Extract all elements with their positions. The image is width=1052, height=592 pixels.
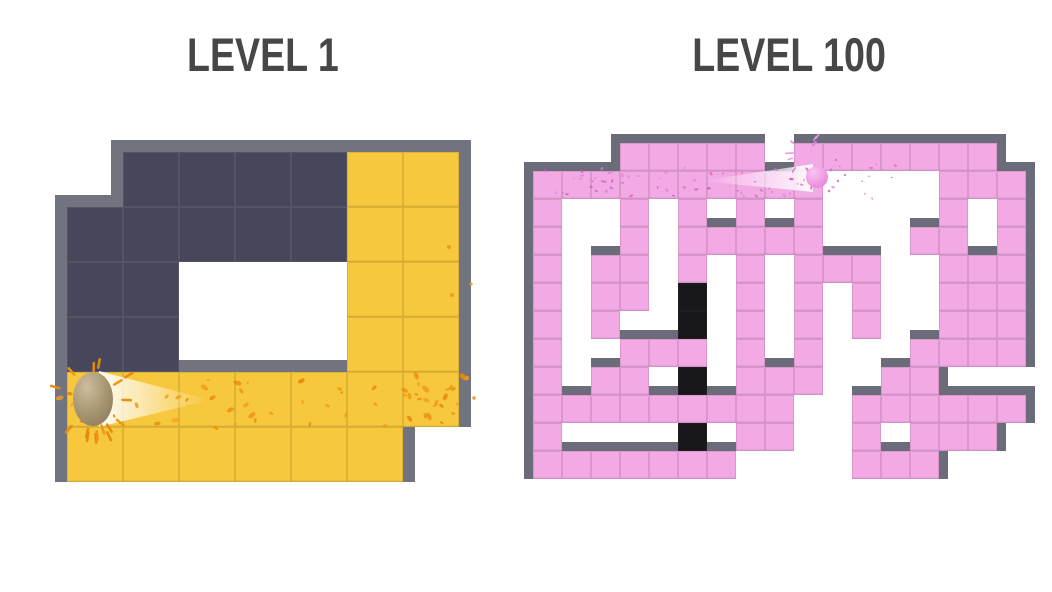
- maze-wall: [562, 442, 591, 451]
- maze-wall: [765, 218, 794, 227]
- maze-wall: [562, 386, 591, 395]
- maze-tile: [794, 255, 823, 283]
- maze-wall: [968, 386, 997, 395]
- maze-tile: [765, 395, 794, 423]
- maze-tile: [736, 367, 765, 395]
- maze-wall: [823, 246, 852, 255]
- maze-wall: [620, 442, 649, 451]
- maze-wall: [765, 162, 794, 171]
- maze-tile: [591, 395, 620, 423]
- maze-wall: [1026, 255, 1035, 283]
- maze-wall: [881, 442, 910, 451]
- maze-tile: [736, 143, 765, 171]
- maze-tile: [533, 367, 562, 395]
- maze-tile: [678, 171, 707, 199]
- maze-tile: [620, 255, 649, 283]
- level-100-maze[interactable]: [0, 0, 1052, 592]
- maze-wall: [524, 311, 533, 339]
- maze-tile: [678, 367, 707, 395]
- maze-tile: [997, 171, 1026, 199]
- maze-tile: [678, 283, 707, 311]
- maze-tile: [678, 227, 707, 255]
- maze-tile: [591, 171, 620, 199]
- maze-tile: [910, 227, 939, 255]
- maze-tile: [649, 171, 678, 199]
- maze-tile: [765, 171, 794, 199]
- maze-tile: [968, 255, 997, 283]
- maze-tile: [852, 311, 881, 339]
- maze-tile: [591, 451, 620, 479]
- maze-wall: [649, 134, 678, 143]
- maze-tile: [997, 199, 1026, 227]
- maze-wall: [591, 358, 620, 367]
- maze-wall: [591, 246, 620, 255]
- maze-tile: [968, 423, 997, 451]
- maze-wall: [939, 386, 968, 395]
- maze-wall: [1026, 283, 1035, 311]
- maze-wall: [524, 162, 533, 199]
- maze-wall: [939, 451, 948, 479]
- maze-wall: [524, 423, 533, 451]
- maze-tile: [881, 395, 910, 423]
- maze-wall: [591, 442, 620, 451]
- maze-tile: [736, 171, 765, 199]
- maze-tile: [997, 255, 1026, 283]
- maze-wall: [852, 134, 881, 143]
- maze-tile: [765, 227, 794, 255]
- maze-tile: [620, 395, 649, 423]
- maze-tile: [707, 171, 736, 199]
- maze-tile: [620, 339, 649, 367]
- maze-wall: [910, 134, 939, 143]
- maze-tile: [794, 283, 823, 311]
- maze-wall: [524, 451, 533, 479]
- maze-wall: [881, 358, 910, 367]
- maze-tile: [620, 143, 649, 171]
- maze-wall: [852, 386, 881, 395]
- maze-tile: [794, 227, 823, 255]
- maze-tile: [620, 199, 649, 227]
- maze-wall: [1026, 162, 1035, 199]
- maze-tile: [678, 423, 707, 451]
- maze-tile: [968, 143, 997, 171]
- maze-tile: [649, 339, 678, 367]
- maze-tile: [736, 395, 765, 423]
- maze-wall: [649, 442, 678, 451]
- maze-wall: [649, 386, 678, 395]
- maze-tile: [968, 339, 997, 367]
- maze-tile: [533, 311, 562, 339]
- maze-tile: [533, 451, 562, 479]
- maze-tile: [678, 451, 707, 479]
- maze-wall: [524, 255, 533, 283]
- screenshot-root: LEVEL 1 LEVEL 100: [0, 0, 1052, 592]
- maze-tile: [939, 339, 968, 367]
- maze-wall: [524, 367, 533, 395]
- maze-tile: [939, 395, 968, 423]
- maze-tile: [533, 395, 562, 423]
- maze-wall: [524, 227, 533, 255]
- maze-tile: [649, 395, 678, 423]
- maze-tile: [533, 227, 562, 255]
- maze-tile: [794, 171, 823, 199]
- maze-tile: [997, 311, 1026, 339]
- maze-tile: [852, 283, 881, 311]
- maze-tile: [533, 283, 562, 311]
- maze-tile: [968, 171, 997, 199]
- maze-tile: [678, 311, 707, 339]
- maze-tile: [562, 171, 591, 199]
- maze-wall: [707, 386, 736, 395]
- maze-tile: [765, 423, 794, 451]
- maze-tile: [939, 143, 968, 171]
- maze-tile: [910, 143, 939, 171]
- maze-wall: [939, 134, 968, 143]
- maze-tile: [620, 171, 649, 199]
- maze-tile: [533, 339, 562, 367]
- maze-tile: [562, 395, 591, 423]
- maze-wall: [524, 395, 533, 423]
- maze-tile: [939, 171, 968, 199]
- maze-tile: [707, 143, 736, 171]
- maze-tile: [736, 311, 765, 339]
- maze-tile: [736, 255, 765, 283]
- maze-tile: [852, 143, 881, 171]
- maze-tile: [591, 311, 620, 339]
- maze-tile: [939, 255, 968, 283]
- maze-tile: [939, 283, 968, 311]
- maze-tile: [939, 423, 968, 451]
- maze-tile: [852, 395, 881, 423]
- maze-wall: [524, 199, 533, 227]
- maze-wall: [968, 246, 997, 255]
- maze-wall: [910, 330, 939, 339]
- maze-tile: [968, 311, 997, 339]
- maze-wall: [1026, 386, 1035, 423]
- maze-tile: [678, 339, 707, 367]
- maze-tile: [823, 255, 852, 283]
- maze-tile: [968, 395, 997, 423]
- maze-wall: [910, 218, 939, 227]
- maze-wall: [1026, 199, 1035, 227]
- maze-tile: [678, 255, 707, 283]
- maze-tile: [939, 227, 968, 255]
- maze-tile: [678, 143, 707, 171]
- maze-tile: [881, 451, 910, 479]
- maze-tile: [591, 283, 620, 311]
- maze-tile: [591, 255, 620, 283]
- maze-wall: [524, 283, 533, 311]
- maze-tile: [562, 451, 591, 479]
- maze-tile: [736, 283, 765, 311]
- maze-tile: [736, 227, 765, 255]
- maze-wall: [765, 358, 794, 367]
- maze-tile: [794, 143, 823, 171]
- maze-wall: [997, 423, 1006, 451]
- maze-tile: [649, 451, 678, 479]
- maze-tile: [939, 311, 968, 339]
- maze-tile: [678, 199, 707, 227]
- maze-tile: [852, 451, 881, 479]
- maze-tile: [968, 283, 997, 311]
- maze-tile: [736, 423, 765, 451]
- maze-tile: [910, 367, 939, 395]
- maze-tile: [823, 143, 852, 171]
- maze-tile: [533, 255, 562, 283]
- maze-tile: [620, 283, 649, 311]
- maze-tile: [997, 339, 1026, 367]
- maze-tile: [997, 395, 1026, 423]
- maze-wall: [736, 134, 765, 143]
- maze-tile: [707, 451, 736, 479]
- maze-tile: [910, 451, 939, 479]
- maze-tile: [591, 367, 620, 395]
- maze-tile: [794, 339, 823, 367]
- maze-wall: [678, 134, 707, 143]
- maze-tile: [910, 395, 939, 423]
- maze-tile: [852, 255, 881, 283]
- maze-tile: [765, 367, 794, 395]
- maze-tile: [794, 311, 823, 339]
- maze-wall: [794, 134, 823, 143]
- maze-tile: [794, 367, 823, 395]
- maze-tile: [794, 199, 823, 227]
- maze-wall: [591, 162, 620, 171]
- maze-tile: [852, 423, 881, 451]
- maze-tile: [881, 367, 910, 395]
- maze-wall: [620, 330, 649, 339]
- maze-wall: [881, 134, 910, 143]
- maze-tile: [910, 339, 939, 367]
- maze-tile: [707, 227, 736, 255]
- maze-wall: [852, 246, 881, 255]
- maze-wall: [707, 218, 736, 227]
- maze-tile: [997, 227, 1026, 255]
- maze-tile: [649, 143, 678, 171]
- maze-tile: [533, 423, 562, 451]
- maze-tile: [707, 395, 736, 423]
- maze-wall: [707, 442, 736, 451]
- maze-tile: [997, 283, 1026, 311]
- maze-wall: [707, 134, 736, 143]
- maze-wall: [562, 162, 591, 171]
- maze-tile: [620, 451, 649, 479]
- maze-wall: [649, 330, 678, 339]
- maze-tile: [910, 423, 939, 451]
- maze-wall: [524, 339, 533, 367]
- maze-wall: [1026, 339, 1035, 367]
- maze-tile: [678, 395, 707, 423]
- maze-tile: [939, 199, 968, 227]
- maze-wall: [823, 134, 852, 143]
- maze-wall: [1026, 311, 1035, 339]
- maze-tile: [736, 199, 765, 227]
- maze-tile: [881, 143, 910, 171]
- maze-tile: [736, 339, 765, 367]
- maze-tile: [533, 171, 562, 199]
- maze-tile: [620, 367, 649, 395]
- maze-wall: [1026, 227, 1035, 255]
- maze-tile: [533, 199, 562, 227]
- maze-tile: [620, 227, 649, 255]
